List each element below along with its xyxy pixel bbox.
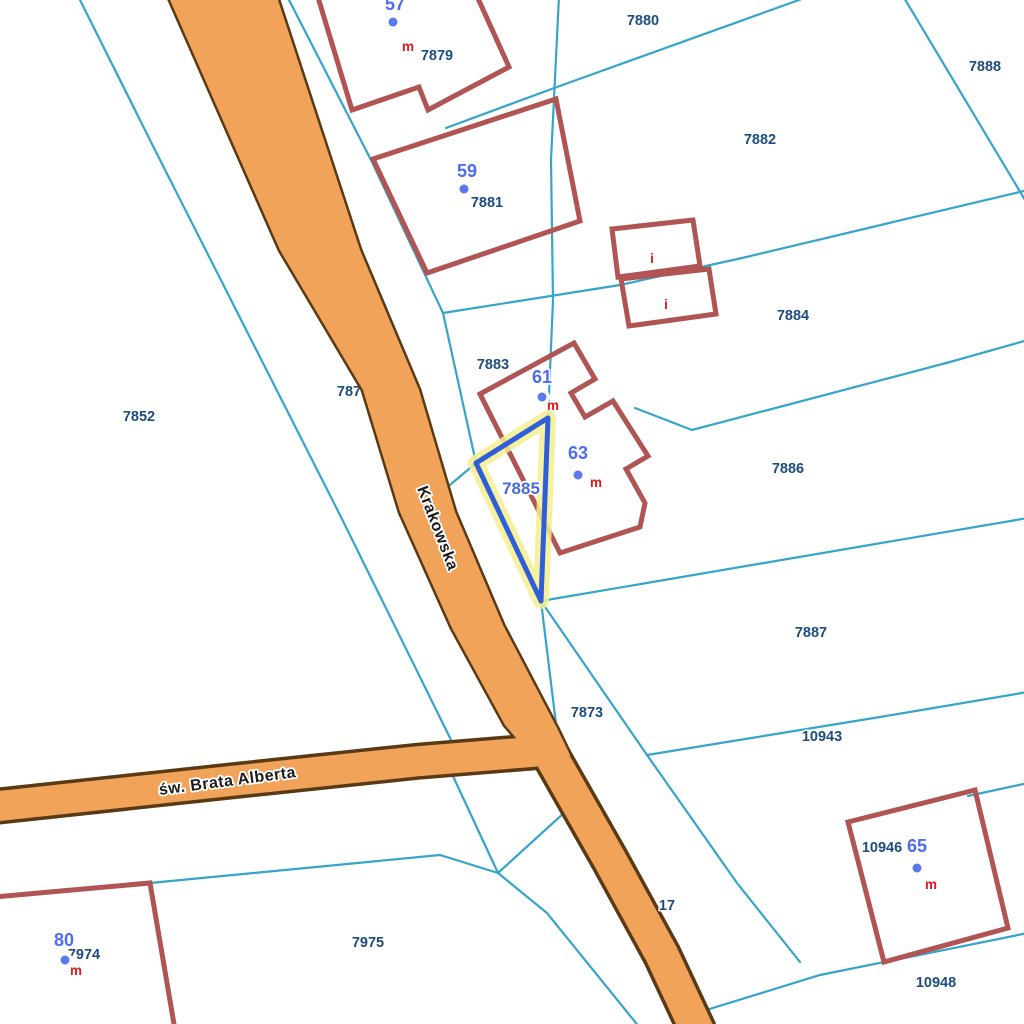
building-dot (389, 18, 398, 27)
parcel-boundary-line (452, 774, 498, 873)
parcel-label-7886: 7886 (772, 461, 804, 477)
parcel-label-7888: 7888 (969, 59, 1001, 75)
use-letter-m-80: m (70, 963, 82, 978)
parcel-label-10948: 10948 (916, 975, 956, 991)
parcel-label-7880: 7880 (627, 13, 659, 29)
parcel-label-7883: 7883 (477, 357, 509, 373)
parcel-label-7881: 7881 (471, 195, 503, 211)
building-i-upper-outline (612, 220, 700, 277)
building-dot (460, 185, 469, 194)
parcel-boundary-line (647, 692, 1024, 755)
parcel-label-10946: 10946 (862, 840, 902, 856)
building-number-61: 61 (532, 367, 552, 387)
building-59-outline (373, 99, 580, 273)
under-road-labels: 787 (337, 384, 361, 400)
building-number-59: 59 (457, 161, 477, 181)
cadastral-map: 787 Krakowska św. Brata Alberta 7880 788… (0, 0, 1024, 1024)
selected-parcel-halo (476, 418, 548, 601)
parcel-boundary-line (150, 855, 498, 883)
building-number-63: 63 (568, 443, 588, 463)
building-number-80: 80 (54, 930, 74, 950)
building-65-outline (848, 790, 1008, 962)
use-letter-i-upper: i (650, 251, 654, 266)
selected-parcel-label: 7885 (502, 479, 540, 498)
building-dot (538, 393, 547, 402)
building-number-57: 57 (385, 0, 405, 14)
use-letter-i-lower: i (664, 297, 668, 312)
use-letter-m-65: m (925, 877, 937, 892)
parcel-label-7975: 7975 (352, 935, 384, 951)
road-casings (0, 0, 698, 1024)
cadastral-map-canvas[interactable]: 787 Krakowska św. Brata Alberta 7880 788… (0, 0, 1024, 1024)
parcel-label-road-partial: 787 (337, 384, 361, 400)
parcel-boundary-line (635, 340, 1024, 430)
building-i-lower-outline (621, 269, 716, 326)
parcel-boundary-line (443, 190, 1024, 313)
building-57-outline (317, 0, 509, 110)
parcel-label-10943: 10943 (802, 729, 842, 745)
parcel-label-7852: 7852 (123, 409, 155, 425)
parcel-boundary-line (690, 933, 1024, 1015)
building-dot (61, 956, 70, 965)
building-dot (574, 471, 583, 480)
parcel-label-7887: 7887 (795, 625, 827, 641)
parcel-label-7873: 7873 (571, 705, 603, 721)
parcel-boundary-line (498, 812, 565, 873)
parcel-label-17-partial: 17 (659, 898, 675, 914)
building-dot (913, 864, 922, 873)
parcel-boundary-line (903, 0, 1024, 205)
selected-parcel-highlight (476, 418, 548, 601)
parcel-boundary-line (541, 518, 1024, 601)
parcel-label-7879: 7879 (421, 48, 453, 64)
use-letter-m-57: m (402, 39, 414, 54)
parcel-label-7884: 7884 (777, 308, 809, 324)
use-letter-m-63: m (590, 475, 602, 490)
building-number-65: 65 (907, 836, 927, 856)
parcel-label-7882: 7882 (744, 132, 776, 148)
selected-parcel-label-group: 7885 (502, 479, 540, 498)
